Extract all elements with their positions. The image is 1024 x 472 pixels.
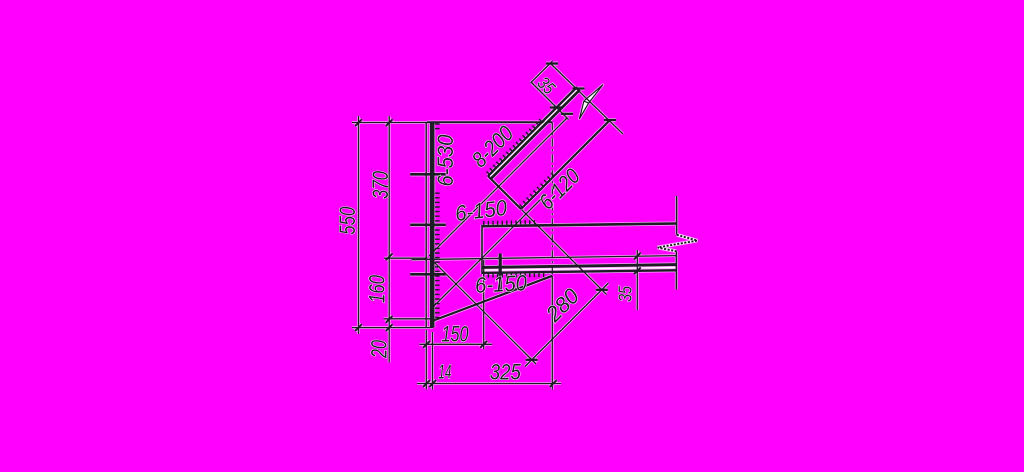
svg-text:20: 20: [366, 339, 391, 358]
svg-text:370: 370: [368, 170, 393, 199]
svg-text:14: 14: [438, 361, 451, 383]
svg-text:550: 550: [335, 206, 360, 235]
svg-text:35: 35: [616, 285, 636, 302]
svg-text:160: 160: [364, 274, 389, 303]
svg-text:6-150: 6-150: [474, 270, 528, 298]
svg-text:325: 325: [490, 359, 522, 384]
svg-text:150: 150: [442, 321, 470, 346]
svg-text:6-530: 6-530: [433, 134, 458, 187]
